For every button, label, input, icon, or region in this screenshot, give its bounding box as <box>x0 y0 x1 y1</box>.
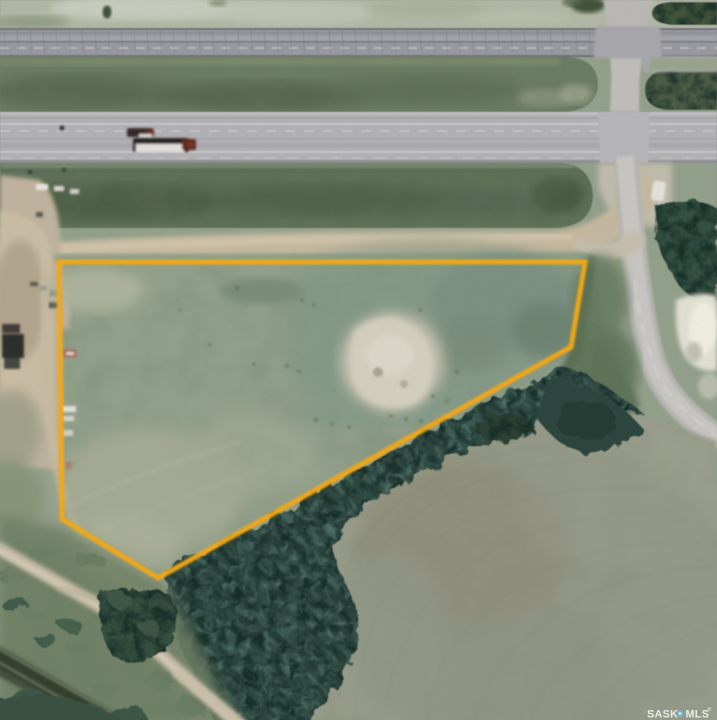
svg-text:SASK: SASK <box>647 709 678 720</box>
svg-text:®: ® <box>708 706 712 713</box>
svg-text:MLS: MLS <box>686 709 710 720</box>
